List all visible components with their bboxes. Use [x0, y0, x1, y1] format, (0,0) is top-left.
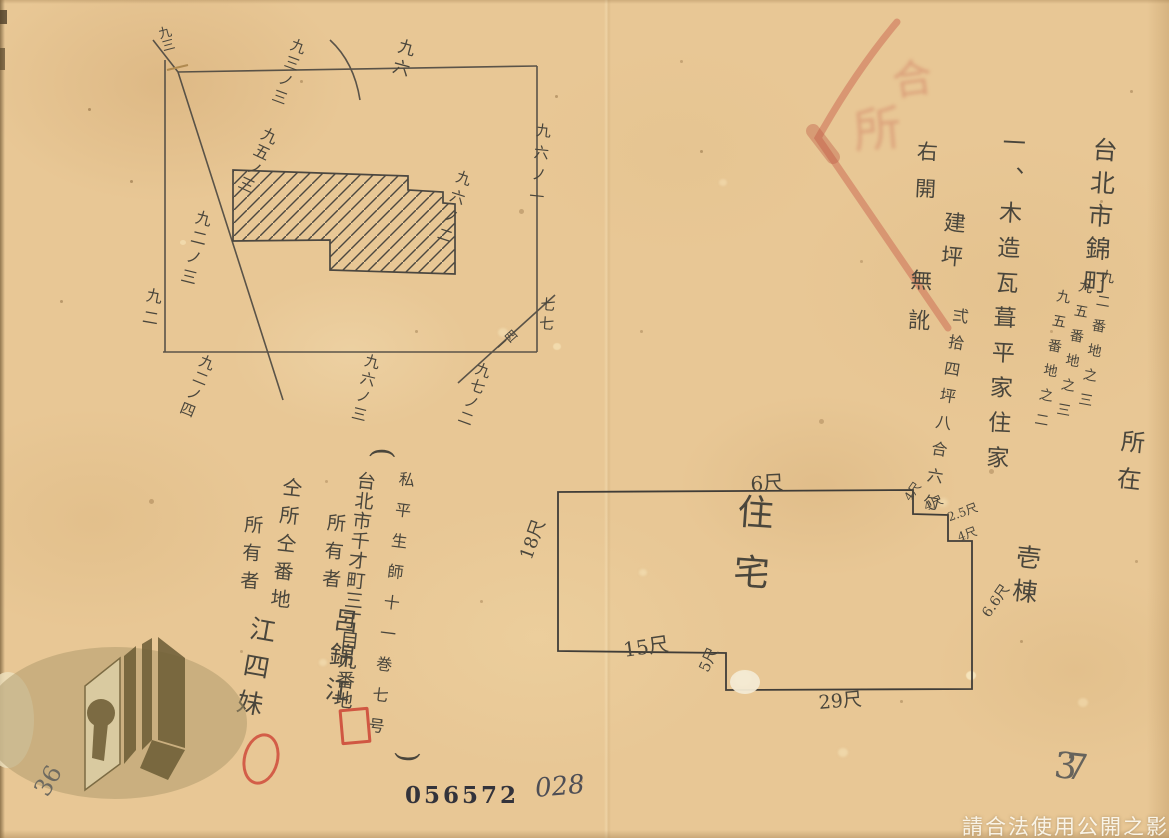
- reference-paren-open: (: [369, 447, 397, 459]
- logo-page-leaf-2: [142, 638, 152, 750]
- parcel-label-77: 七七: [537, 296, 555, 335]
- corner-tick-brown: [167, 65, 188, 70]
- red-stamp-character-2: 所: [850, 88, 904, 162]
- logo-keyhole-circle: [87, 699, 115, 727]
- property-building-description: 一、木造瓦葺平家住家: [982, 130, 1023, 481]
- dim-label-bottom: 29尺: [818, 690, 863, 713]
- owner2-address: 仝所仝番地: [267, 476, 302, 617]
- binding-mark-second: [0, 48, 5, 70]
- page-number-handwritten: 028: [534, 772, 586, 802]
- paper-fold-crease: [604, 0, 611, 838]
- paper-edge-top: [0, 0, 1169, 4]
- pencil-number-right: 37: [1052, 748, 1077, 786]
- reference-paren-close: ): [394, 751, 422, 763]
- logo-page-leaf-1: [124, 646, 136, 764]
- paper-edge-right: [1147, 0, 1169, 838]
- paper-damage-spot: [730, 670, 760, 694]
- scanned-document-page: 九三 九三ノ三 九六 九六ノ一 九六ノ二 九五ノ三 九二 九二ノ三 九二ノ四 九…: [0, 0, 1169, 838]
- usage-notice-watermark: 請合法使用公開之影像: [962, 811, 1169, 838]
- boundary-top: [178, 66, 537, 72]
- dim-label-top: 6尺: [750, 472, 784, 494]
- red-crayon-check-stamp: [800, 10, 970, 340]
- paper-speckles-dark: [88, 108, 91, 111]
- owner2-label: 所有者: [237, 514, 262, 599]
- archives-logo-watermark: [0, 628, 250, 833]
- property-building-count: 壱棟: [1009, 543, 1041, 613]
- owner1-label: 所有者: [319, 512, 345, 597]
- red-chevron-vertex-blob: [813, 131, 833, 157]
- property-area-label: 建坪: [936, 210, 964, 280]
- owner1-seal-square: [338, 707, 371, 745]
- serial-number-stamp: 056572: [405, 784, 519, 807]
- closing-phrase-top: 右開: [912, 140, 937, 215]
- hatched-building-footprint: [233, 170, 455, 274]
- property-location-suffix: 所在: [1112, 428, 1144, 504]
- dim-label-bottom-left: 15尺: [622, 634, 670, 660]
- floor-plan-room-label: 住宅: [727, 492, 771, 614]
- binding-mark-top: [0, 10, 7, 24]
- logo-page-leaf-3: [158, 637, 185, 748]
- closing-phrase-bottom: 無訛: [904, 268, 930, 349]
